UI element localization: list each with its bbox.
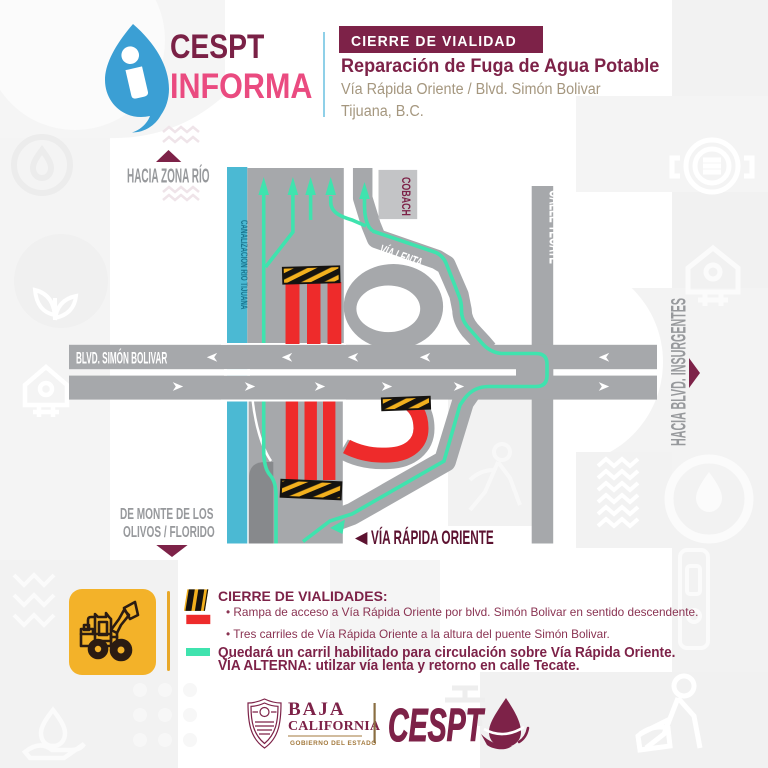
svg-text:CALIFORNIA: CALIFORNIA bbox=[288, 719, 381, 734]
svg-text:BAJA: BAJA bbox=[288, 699, 346, 720]
svg-text:CESPT: CESPT bbox=[388, 700, 486, 752]
svg-text:GOBIERNO DEL ESTADO: GOBIERNO DEL ESTADO bbox=[290, 740, 377, 747]
